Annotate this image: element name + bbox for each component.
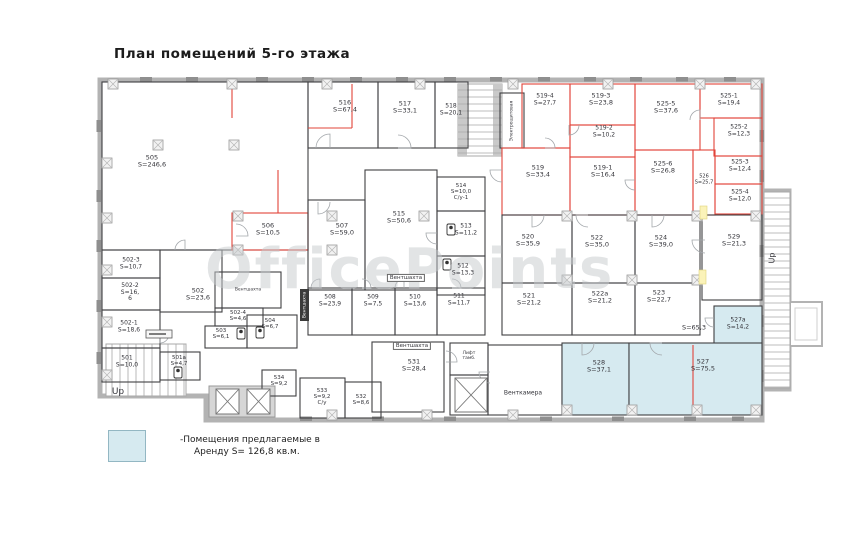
room-label-528: 528S=37,1 bbox=[587, 360, 611, 375]
room-label-529: 529S=21,3 bbox=[722, 234, 746, 249]
lift-lobby-label: Лифттамб. bbox=[463, 351, 476, 361]
vent-chamber-label: Венткамера bbox=[504, 391, 542, 398]
room-label-525-1: 525-1S=19,4 bbox=[718, 93, 740, 106]
room-label-531: 531S=28,4 bbox=[402, 359, 426, 374]
room-label-505: 505S=246,6 bbox=[138, 155, 166, 170]
room-label-519: 519S=33,4 bbox=[526, 165, 550, 180]
legend-text: -Помещения предлагаемые в Аренду S= 126,… bbox=[180, 430, 320, 462]
up-label-right: Up bbox=[769, 253, 778, 264]
room-label-532: 532S=8,6 bbox=[353, 394, 370, 406]
room-label-519-1: 519-1S=16,4 bbox=[591, 165, 615, 180]
corridor-area-label: S=65,3 bbox=[682, 324, 706, 331]
legend-line-1: -Помещения предлагаемые в bbox=[180, 434, 320, 446]
room-label-533: 533S=9,2С/у bbox=[314, 388, 331, 406]
vent-shaft-label-small: Вентшахта bbox=[235, 287, 261, 292]
room-label-525-3: 525-3S=12,4 bbox=[729, 159, 751, 172]
room-label-512: 512S=13,3 bbox=[452, 263, 474, 276]
room-label-506: 506S=10,5 bbox=[256, 223, 280, 238]
legend: -Помещения предлагаемые в Аренду S= 126,… bbox=[108, 430, 320, 462]
room-label-519-2: 519-2S=10,2 bbox=[593, 125, 615, 138]
room-label-518: 518S=20,1 bbox=[440, 103, 462, 116]
room-label-513: 513S=11,2 bbox=[455, 223, 477, 236]
room-label-519-4: 519-4S=27,7 bbox=[534, 93, 556, 106]
room-label-527а: 527аS=14,2 bbox=[727, 317, 749, 330]
room-label-508: 508S=23,9 bbox=[319, 294, 341, 307]
room-label-501а: 501аS=4,7 bbox=[171, 355, 188, 367]
room-label-515: 515S=50,6 bbox=[387, 211, 411, 226]
vent-shaft-label: Вентшахта bbox=[393, 342, 431, 350]
room-label-502-4: 502-4S=4,6 bbox=[230, 310, 247, 322]
floor-plan-page: OfficePoints План помещений 5-го этажа 5… bbox=[0, 0, 854, 558]
room-label-502: 502S=23,6 bbox=[186, 288, 210, 303]
room-label-525-2: 525-2S=12,3 bbox=[728, 124, 750, 137]
room-label-524: 524S=39,0 bbox=[649, 235, 673, 250]
room-label-511: 511S=11,7 bbox=[448, 293, 470, 306]
room-label-516: 516S=67,4 bbox=[333, 100, 357, 115]
room-label-534: 534S=9,2 bbox=[271, 375, 288, 387]
room-label-519-3: 519-3S=23,8 bbox=[589, 93, 613, 108]
room-label-514: 514S=10,0С/у-1 bbox=[451, 183, 471, 201]
room-label-502-1: 502-1S=18,6 bbox=[118, 320, 140, 333]
room-label-521: 521S=21,2 bbox=[517, 293, 541, 308]
room-label-523: 523S=22,7 bbox=[647, 290, 671, 305]
room-labels-layer: 505S=246,6516S=67,4517S=33,1518S=20,1519… bbox=[0, 0, 854, 558]
room-label-522а: 522аS=21,2 bbox=[588, 291, 612, 306]
vent-shaft-label-vertical: Вентшахта bbox=[302, 292, 307, 318]
room-label-527: 527S=75,5 bbox=[691, 359, 715, 374]
room-label-504: 504S=6,7 bbox=[262, 318, 279, 330]
room-label-502-3: 502-3S=10,7 bbox=[120, 257, 142, 270]
room-label-507: 507S=59,0 bbox=[330, 223, 354, 238]
vent-shaft-label: Вентшахта bbox=[387, 274, 425, 282]
legend-line-2: Аренду S= 126,8 кв.м. bbox=[180, 446, 320, 458]
room-label-520: 520S=35,9 bbox=[516, 234, 540, 249]
room-label-509: 509S=7,5 bbox=[364, 294, 382, 307]
room-label-525-5: 525-5S=37,6 bbox=[654, 101, 678, 116]
room-label-517: 517S=33,1 bbox=[393, 101, 417, 116]
room-label-522: 522S=35,0 bbox=[585, 235, 609, 250]
up-label-left: Up bbox=[112, 387, 124, 397]
room-label-525-6: 525-6S=26,8 bbox=[651, 161, 675, 176]
room-label-526: 526S=25,7 bbox=[695, 174, 714, 185]
room-label-501: 501S=10,0 bbox=[116, 355, 138, 368]
electrical-room-label: Электрощитовая bbox=[509, 101, 514, 141]
room-label-503: 503S=6,1 bbox=[213, 328, 230, 340]
legend-swatch bbox=[108, 430, 146, 462]
room-label-502-2: 502-2S=16,6 bbox=[121, 283, 139, 303]
room-label-510: 510S=13,6 bbox=[404, 294, 426, 307]
room-label-525-4: 525-4S=12,0 bbox=[729, 189, 751, 202]
